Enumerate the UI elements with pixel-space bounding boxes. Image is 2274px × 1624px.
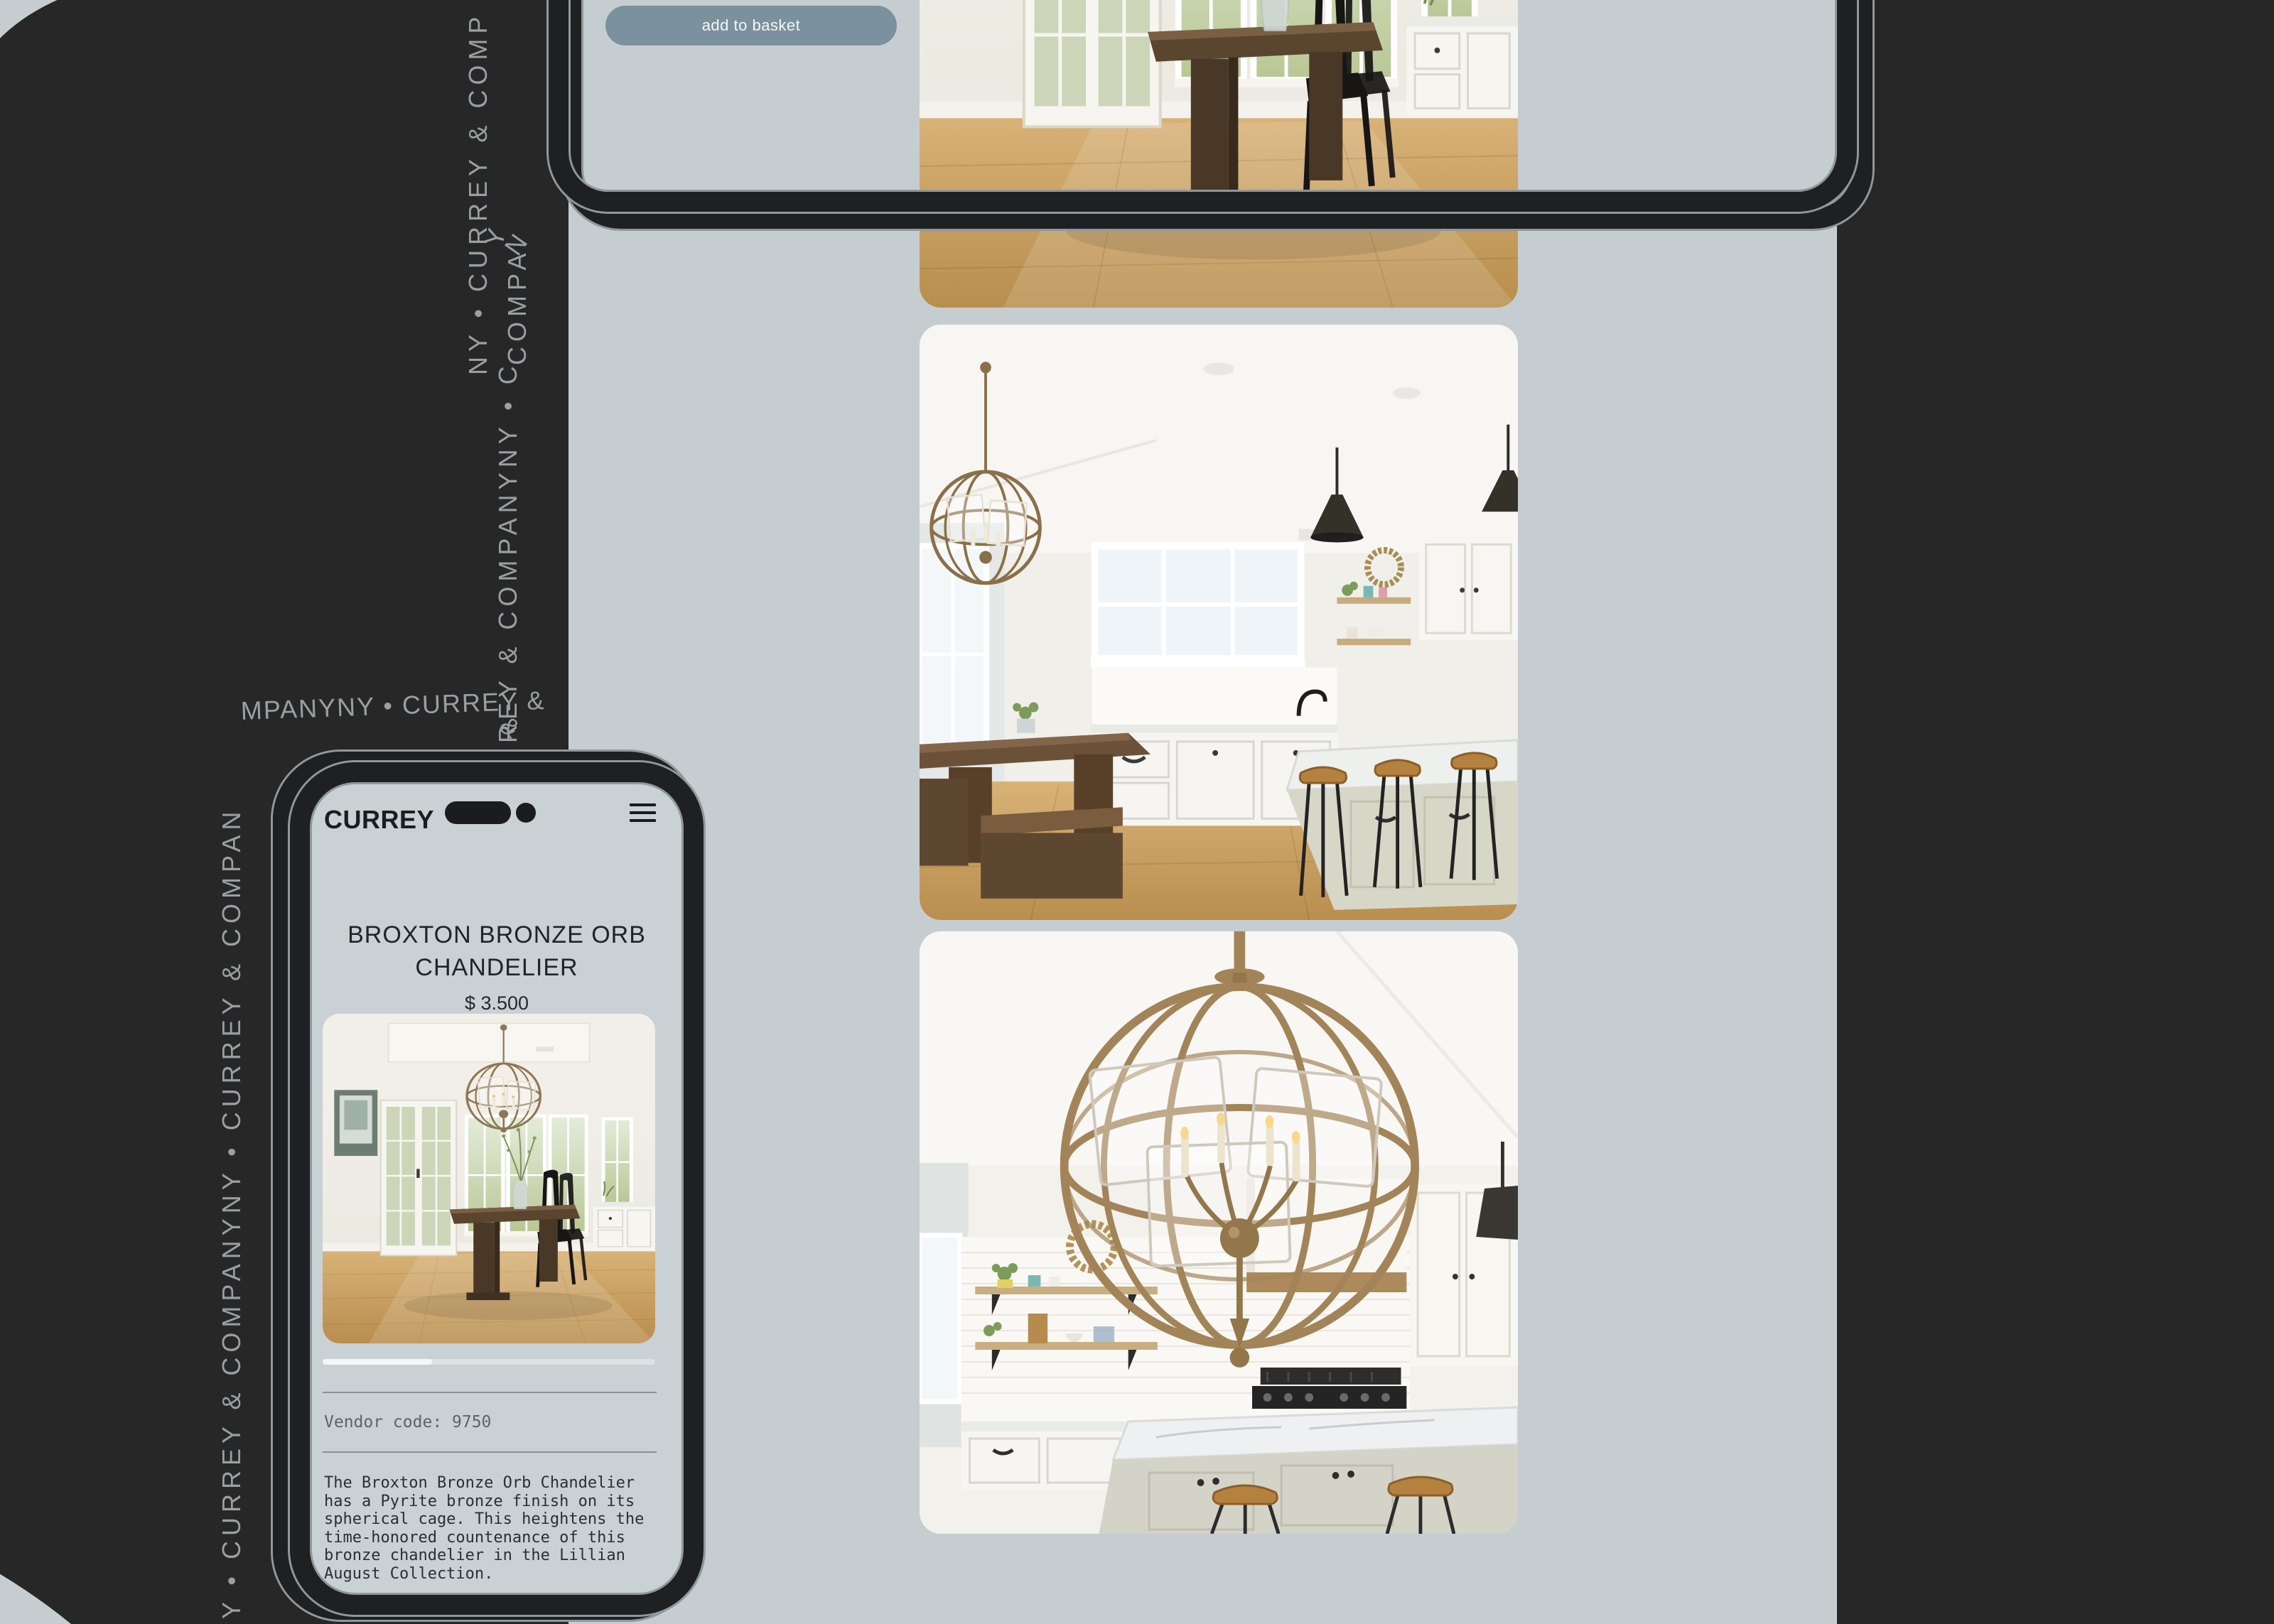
product-price: $ 3.500 — [310, 992, 684, 1014]
page-canvas: NY • CURREY & COMPANYNY • CURREY & COMPA… — [0, 0, 2274, 1624]
add-to-basket-button[interactable]: add to basket — [605, 6, 897, 45]
phone-screen: CURREY BROXTON BRONZE ORB CHANDELIER $ 3… — [310, 782, 684, 1595]
divider — [323, 1451, 657, 1453]
vendor-code: Vendor code: 9750 — [324, 1413, 491, 1431]
product-title: BROXTON BRONZE ORB CHANDELIER — [310, 919, 684, 984]
product-description: The Broxton Bronze Orb Chandelier has a … — [324, 1474, 661, 1583]
product-image[interactable] — [323, 1014, 655, 1343]
hamburger-menu-icon[interactable] — [630, 803, 656, 822]
product-title-line1: BROXTON BRONZE ORB — [310, 919, 684, 951]
dynamic-island-camera-dot — [516, 803, 536, 823]
brand-logo[interactable]: CURREY — [324, 805, 434, 835]
photo-kitchen-island — [920, 325, 1518, 920]
product-title-line2: CHANDELIER — [310, 951, 684, 984]
photo-orb-chandelier-closeup — [920, 931, 1518, 1534]
ring-text-compa: COMPA — [501, 249, 534, 365]
ring-text-inner-top: NY • CURREY & COMP — [462, 12, 495, 375]
image-carousel-indicator[interactable] — [323, 1359, 655, 1365]
photo-dining-room — [920, 0, 1518, 308]
dynamic-island-pill — [445, 801, 511, 824]
divider — [323, 1392, 657, 1393]
image-carousel-indicator-fill — [323, 1359, 432, 1365]
ring-text-left: NY • CURREY & COMPANYNY • CURREY & COMPA… — [215, 807, 248, 1624]
